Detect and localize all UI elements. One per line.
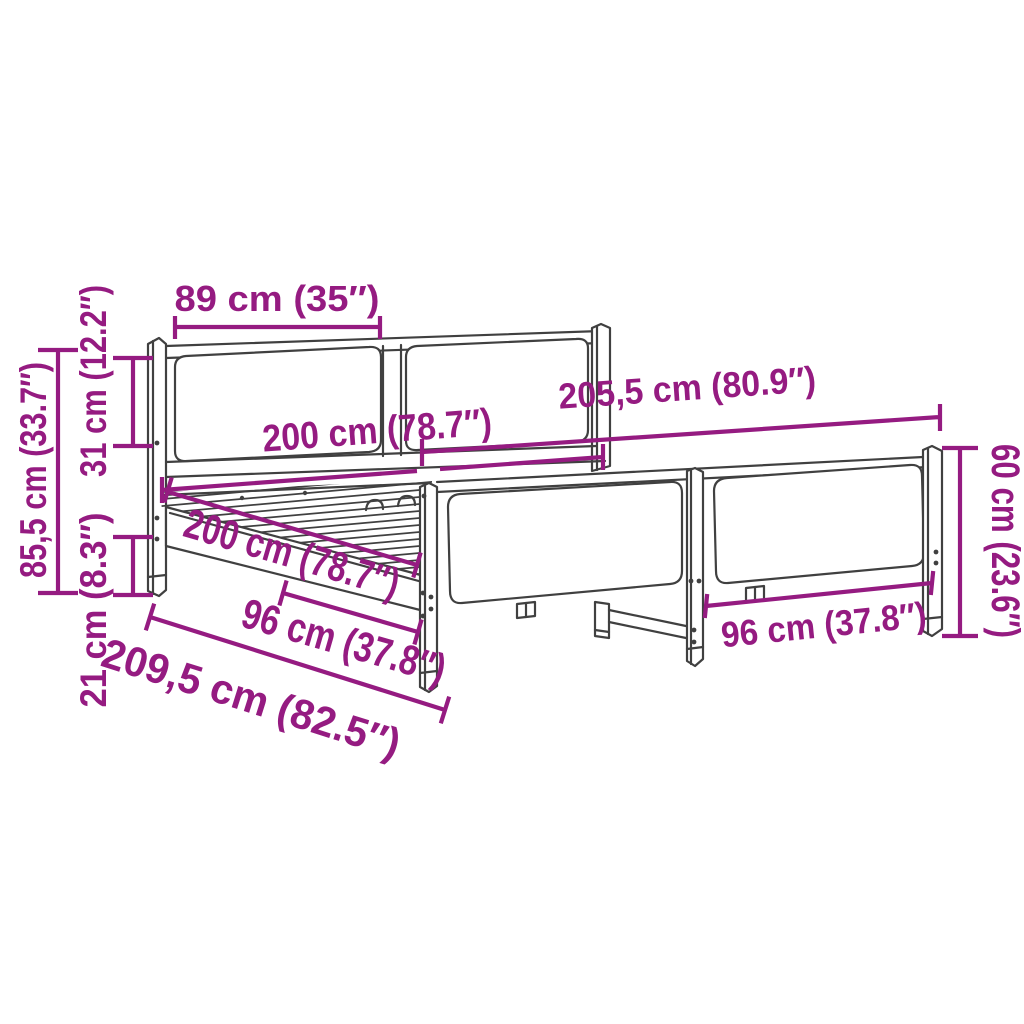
footboard-panel-left bbox=[448, 482, 682, 603]
footboard-middle-post bbox=[687, 468, 703, 666]
footboard bbox=[420, 446, 942, 692]
dim-footboard-height: 60 cm (23.6″) bbox=[942, 444, 1024, 638]
dim-footboard-panel-width-right: 96 cm (37.8″) bbox=[705, 571, 933, 655]
center-support bbox=[595, 602, 686, 638]
bed-frame-diagram: 89 cm (35″) 205,5 cm (80.9″) 200 cm (78.… bbox=[0, 0, 1024, 1024]
diagram-canvas: 89 cm (35″) 205,5 cm (80.9″) 200 cm (78.… bbox=[0, 0, 1024, 1024]
footboard-panel-right bbox=[714, 465, 924, 583]
label-footboard-height: 60 cm (23.6″) bbox=[983, 444, 1024, 638]
footboard-right-post bbox=[923, 446, 942, 636]
label-headboard-panel-height: 31 cm (12.2″) bbox=[73, 285, 114, 477]
label-headboard-height: 85,5 cm (33.7″) bbox=[13, 362, 54, 578]
label-headboard-panel-width: 89 cm (35″) bbox=[175, 278, 380, 319]
headboard-left-post bbox=[148, 338, 166, 596]
label-under-bed-clearance: 21 cm (8.3″) bbox=[73, 513, 114, 708]
dim-headboard-panel-height: 31 cm (12.2″) bbox=[73, 285, 153, 477]
dim-headboard-height: 85,5 cm (33.7″) bbox=[13, 350, 78, 593]
dim-headboard-panel-width: 89 cm (35″) bbox=[175, 278, 381, 339]
